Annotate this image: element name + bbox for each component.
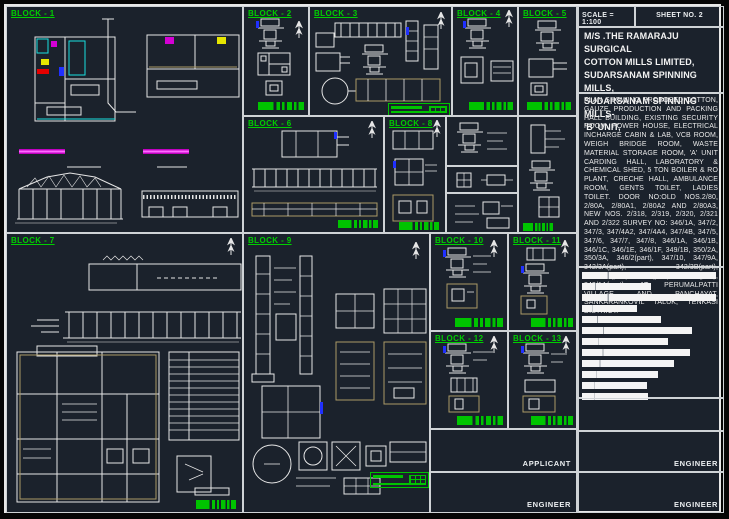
block-9-label: BLOCK - 9	[248, 236, 292, 245]
table-row	[582, 272, 720, 279]
plan-description: PLAN SHOWING PROPOSED COTTON, GAUZE PROD…	[578, 93, 724, 267]
signature-box-engineer-2: ENGINEER	[578, 431, 724, 472]
block-3-panel: BLOCK - 3	[309, 6, 452, 116]
table-row	[582, 382, 720, 389]
scale-bar	[531, 318, 573, 327]
project-title: M/S .THE RAMARAJU SURGICAL COTTON MILLS …	[578, 27, 724, 93]
north-arrow-icon	[562, 336, 571, 355]
north-arrow-icon	[490, 240, 499, 259]
block-5-panel: BLOCK - 5	[518, 6, 577, 116]
table-row	[582, 371, 720, 378]
cad-application-canvas: { "sheet": { "scale_label": "SCALE = 1:1…	[0, 0, 729, 519]
north-arrow-icon	[561, 240, 570, 259]
detail-subpanel-3	[446, 193, 518, 233]
block-5-drawing	[519, 7, 577, 116]
north-arrow-icon	[295, 21, 304, 40]
detail-subpanel-4	[518, 116, 577, 233]
table-row	[582, 305, 720, 312]
north-arrow-icon	[433, 120, 442, 139]
block-12-label: BLOCK - 12	[435, 334, 483, 343]
block-8-label: BLOCK - 8	[389, 119, 433, 128]
scale-bar	[338, 220, 378, 228]
block-7-panel: BLOCK - 7	[6, 233, 243, 513]
block-3-drawing	[310, 7, 452, 116]
title-block: SCALE = 1:100 SHEET NO. 2 M/S .THE RAMAR…	[577, 6, 723, 513]
scale-bar	[258, 102, 304, 110]
block-6-label: BLOCK - 6	[248, 119, 292, 128]
scale-bar	[469, 102, 513, 110]
table-row	[582, 316, 720, 323]
block-13-panel: BLOCK - 13	[508, 331, 577, 429]
table-row	[582, 327, 720, 334]
block-13-label: BLOCK - 13	[513, 334, 561, 343]
title-block-table	[578, 267, 724, 398]
scale-bar	[455, 318, 503, 327]
block-11-label: BLOCK - 11	[513, 236, 561, 245]
table-row	[582, 338, 720, 345]
detail-subpanel-4-drawing	[519, 117, 577, 233]
north-arrow-icon	[505, 10, 514, 29]
signature-box-engineer-1: ENGINEER	[430, 472, 577, 513]
north-arrow-icon	[412, 242, 421, 261]
engineer-label: ENGINEER	[674, 500, 718, 509]
sheet-no-label: SHEET NO. 2	[656, 12, 703, 19]
drawing-sheet: BLOCK - 1	[4, 4, 721, 513]
scale-bar	[457, 416, 503, 425]
scale-bar	[531, 416, 573, 425]
scale-bar-magenta	[143, 149, 189, 154]
block-6-panel: BLOCK - 6	[243, 116, 384, 233]
block-9-panel: BLOCK - 9	[243, 233, 430, 513]
block-2-label: BLOCK - 2	[248, 9, 292, 18]
detail-subpanel-1-drawing	[447, 117, 518, 166]
north-arrow-icon	[437, 12, 446, 31]
scale-bar	[523, 223, 553, 231]
block-4-label: BLOCK - 4	[457, 9, 501, 18]
engineer-label: ENGINEER	[527, 500, 571, 509]
table-row	[582, 349, 720, 356]
scale-bar	[388, 103, 450, 116]
detail-subpanel-2	[446, 166, 518, 193]
scale-bar-magenta	[19, 149, 65, 154]
engineer-label: ENGINEER	[674, 459, 718, 468]
block-12-panel: BLOCK - 12	[430, 331, 508, 429]
block-3-label: BLOCK - 3	[314, 9, 358, 18]
block-5-label: BLOCK - 5	[523, 9, 567, 18]
title-block-empty-box	[578, 398, 724, 431]
block-1-panel: BLOCK - 1	[6, 6, 243, 233]
detail-subpanel-1	[446, 116, 518, 166]
block-4-panel: BLOCK - 4	[452, 6, 518, 116]
block-8-panel: BLOCK - 8	[384, 116, 446, 233]
table-row	[582, 294, 720, 301]
block-1-drawing	[7, 7, 243, 233]
signature-box-engineer-3: ENGINEER	[578, 472, 724, 513]
scale-bar	[370, 472, 429, 488]
applicant-label: APPLICANT	[523, 459, 571, 468]
north-arrow-icon	[227, 238, 236, 257]
block-10-label: BLOCK - 10	[435, 236, 483, 245]
block-6-drawing	[244, 117, 384, 233]
sheet-no-box: SHEET NO. 2	[635, 6, 724, 27]
scale-bar	[527, 102, 571, 110]
scale-bar	[399, 222, 439, 230]
north-arrow-icon	[490, 336, 499, 355]
detail-subpanel-3-drawing	[447, 194, 518, 233]
scale-box: SCALE = 1:100	[578, 6, 635, 27]
detail-subpanel-2-drawing	[447, 167, 518, 193]
signature-box-applicant: APPLICANT	[430, 429, 577, 472]
table-row	[582, 360, 720, 367]
scale-label: SCALE = 1:100	[582, 12, 614, 26]
block-7-drawing	[7, 234, 243, 513]
block-1-label: BLOCK - 1	[11, 9, 55, 18]
block-2-panel: BLOCK - 2	[243, 6, 309, 116]
block-7-label: BLOCK - 7	[11, 236, 55, 245]
scale-bar	[196, 500, 236, 509]
block-10-panel: BLOCK - 10	[430, 233, 508, 331]
table-row	[582, 283, 720, 290]
block-11-panel: BLOCK - 11	[508, 233, 577, 331]
north-arrow-icon	[368, 121, 377, 140]
